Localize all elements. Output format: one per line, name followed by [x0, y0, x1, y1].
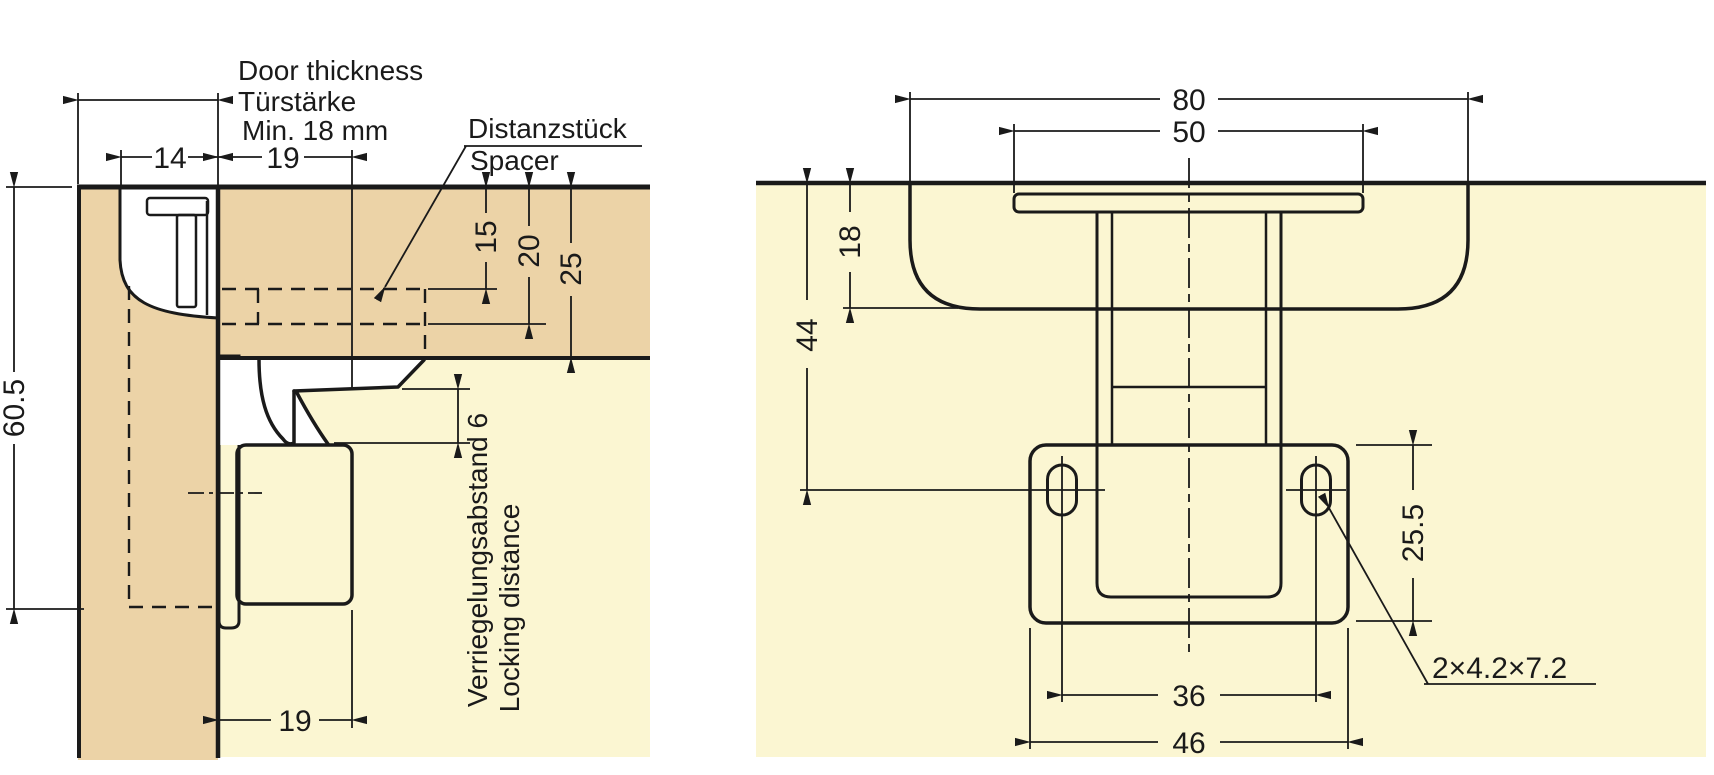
locking-label-de: Verriegelungsabstand 6: [462, 413, 493, 707]
dim-hole-spacing: 36: [1172, 680, 1205, 713]
locking-label-en: Locking distance: [494, 504, 525, 713]
technical-drawing: Door thickness Türstärke Min. 18 mm Dist…: [0, 0, 1714, 775]
right-view: 80 50 18 44 25.5 36 46 2×4.2×7.2: [756, 84, 1706, 760]
slot-note-text: 2×4.2×7.2: [1432, 652, 1567, 685]
dim-latch-depth-bottom: 19: [278, 705, 311, 738]
spacer-label-de: Distanzstück: [468, 113, 628, 144]
dim-catch-width: 80: [1172, 84, 1205, 117]
dim-spacer-bottom-offset: 20: [513, 234, 546, 267]
door-thickness-label-en: Door thickness: [238, 55, 423, 86]
dim-plate-width: 46: [1172, 727, 1205, 760]
spacer-label-en: Spacer: [470, 145, 559, 176]
door-thickness-label-de: Türstärke: [238, 86, 356, 117]
door-thickness-min-label: Min. 18 mm: [242, 115, 388, 146]
dim-catch-height: 18: [834, 225, 867, 258]
dim-hole-center-depth: 44: [791, 318, 824, 351]
drawing-canvas: Door thickness Türstärke Min. 18 mm Dist…: [0, 0, 1714, 775]
dim-plate-height: 25.5: [1397, 504, 1430, 562]
dim-overall-height: 60.5: [0, 379, 31, 437]
dim-spacer-top-offset: 15: [470, 220, 503, 253]
dim-latch-depth-top: 19: [266, 142, 299, 175]
left-view: Door thickness Türstärke Min. 18 mm Dist…: [0, 55, 650, 760]
dim-side-overlay: 14: [153, 142, 186, 175]
dim-flange-width: 50: [1172, 116, 1205, 149]
dim-panel-thickness: 25: [555, 252, 588, 285]
